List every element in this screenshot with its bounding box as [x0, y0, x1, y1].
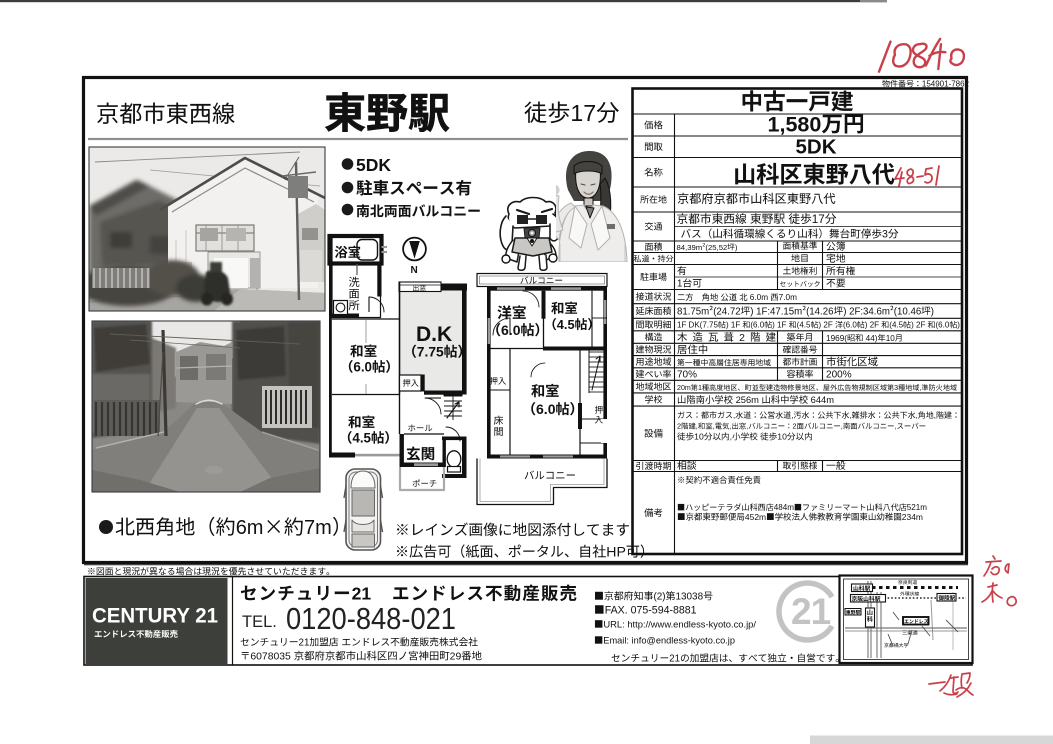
svg-text:6.0: 6.0 — [536, 401, 556, 417]
svg-text:,: , — [791, 411, 793, 420]
svg-text:1: 1 — [698, 384, 702, 392]
svg-text:10: 10 — [886, 334, 896, 343]
svg-text:N: N — [411, 265, 418, 276]
svg-text:) 1F: ) 1F — [772, 321, 789, 330]
svg-text:6.0: 6.0 — [353, 360, 372, 375]
svg-text:81.75m: 81.75m — [677, 306, 709, 317]
svg-text:200%: 200% — [826, 370, 852, 381]
svg-text:): ) — [931, 306, 934, 317]
svg-text:10: 10 — [777, 432, 787, 442]
svg-text:2: 2 — [677, 422, 681, 431]
svg-text:(6.0: (6.0 — [750, 321, 764, 330]
svg-text:5DK: 5DK — [796, 136, 837, 159]
svg-text:7.75: 7.75 — [417, 345, 444, 360]
svg-text:(6.0: (6.0 — [843, 321, 857, 330]
svg-text:29: 29 — [450, 652, 462, 663]
svg-text:,: , — [729, 422, 731, 431]
svg-text:,: , — [895, 422, 897, 431]
svg-text:(4.5: (4.5 — [797, 321, 811, 330]
svg-text:7m: 7m — [304, 517, 332, 539]
svg-text:70%: 70% — [677, 370, 697, 381]
svg-text:): ) — [735, 243, 738, 252]
svg-text:2: 2 — [793, 422, 797, 431]
svg-text:,: , — [733, 411, 735, 420]
svg-text:17: 17 — [812, 213, 825, 226]
svg-text:) 2F:34.6m: ) 2F:34.6m — [843, 306, 890, 317]
svg-text:1: 1 — [677, 279, 682, 290]
svg-text:,: , — [713, 422, 715, 431]
svg-text:1969(: 1969( — [826, 334, 847, 343]
svg-text:,: , — [849, 411, 851, 420]
svg-text:6078035: 6078035 — [250, 652, 293, 663]
svg-text:) 2F: ) 2F — [865, 321, 882, 330]
svg-text:(24.72: (24.72 — [713, 306, 740, 317]
svg-text:(2): (2) — [654, 592, 666, 603]
svg-text:484m: 484m — [774, 503, 794, 512]
svg-text:D.K: D.K — [416, 323, 452, 346]
svg-text:6.0: 6.0 — [501, 322, 521, 338]
svg-text:) 1F:47.15m: ) 1F:47.15m — [750, 306, 802, 317]
svg-text:154901-7862: 154901-7862 — [922, 80, 970, 89]
svg-text:(10.46: (10.46 — [894, 306, 921, 317]
svg-text:3: 3 — [894, 384, 898, 392]
svg-text:21: 21 — [299, 638, 310, 649]
svg-text:1F DK(7.75: 1F DK(7.75 — [677, 321, 718, 330]
svg-text:7.0m: 7.0m — [779, 293, 797, 302]
svg-text:21: 21 — [669, 654, 680, 665]
svg-text:10: 10 — [694, 432, 704, 442]
svg-text:FAX. 075-594-8881: FAX. 075-594-8881 — [605, 605, 697, 617]
svg-text:1,580: 1,580 — [768, 113, 822, 137]
svg-text:Email: info@endless-kyoto.co.j: Email: info@endless-kyoto.co.jp — [603, 636, 735, 646]
svg-text:4.5: 4.5 — [352, 431, 371, 446]
svg-text:(6.0: (6.0 — [936, 321, 950, 330]
svg-text:CENTURY 21: CENTURY 21 — [92, 605, 218, 628]
svg-text:(25,52: (25,52 — [705, 243, 727, 252]
svg-text:44): 44) — [863, 334, 877, 343]
svg-text:20m: 20m — [677, 384, 691, 392]
svg-text:,: , — [934, 411, 936, 420]
svg-text:21: 21 — [791, 591, 831, 632]
svg-text:13038: 13038 — [676, 592, 704, 603]
svg-text:(4.5: (4.5 — [889, 321, 903, 330]
svg-text:4.5: 4.5 — [557, 317, 575, 332]
svg-text:644m: 644m — [808, 395, 834, 405]
svg-text:) 2F: ) 2F — [911, 321, 928, 330]
svg-text:,: , — [841, 422, 843, 431]
svg-text:,: , — [730, 432, 732, 442]
svg-text:,: , — [746, 422, 748, 431]
svg-text:,: , — [696, 422, 698, 431]
svg-text:256m: 256m — [733, 395, 762, 405]
svg-text:17: 17 — [570, 100, 596, 126]
svg-text:84,39m: 84,39m — [677, 243, 703, 252]
svg-text:234m: 234m — [902, 512, 923, 522]
svg-text:6.0m: 6.0m — [748, 293, 771, 302]
svg-text:2: 2 — [739, 333, 745, 344]
svg-text:,: , — [916, 411, 918, 420]
svg-text:452m: 452m — [745, 512, 766, 522]
svg-text:) 1F: ) 1F — [726, 321, 743, 330]
svg-text:5DK: 5DK — [356, 155, 391, 175]
svg-text:TEL.: TEL. — [242, 613, 277, 631]
svg-text:): ) — [957, 321, 960, 330]
svg-text:(14.26: (14.26 — [806, 306, 833, 317]
svg-text:) 2F: ) 2F — [819, 321, 836, 330]
svg-text:6m: 6m — [236, 517, 264, 539]
svg-text:,: , — [919, 384, 921, 392]
svg-text:3: 3 — [882, 229, 888, 241]
svg-text:HP: HP — [606, 544, 626, 560]
svg-text:URL: http://www.endless-kyoto.: URL: http://www.endless-kyoto.co.jp/ — [603, 619, 756, 630]
svg-text:0120-848-021: 0120-848-021 — [286, 601, 456, 636]
